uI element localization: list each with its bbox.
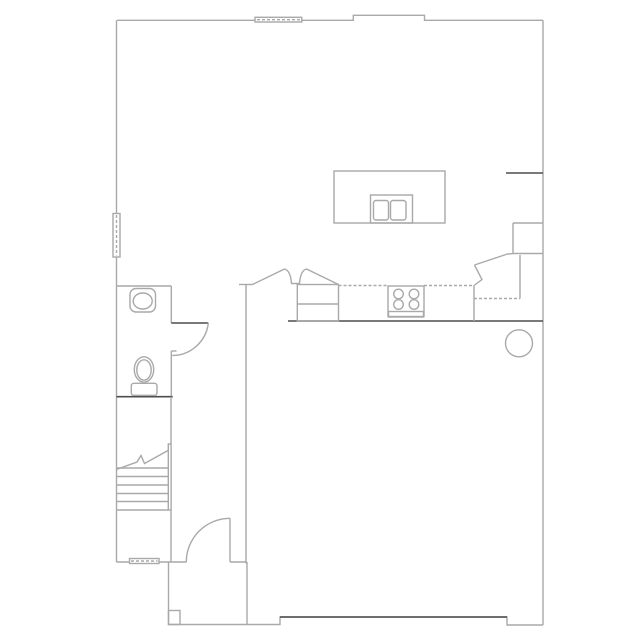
vanity-sink-basin — [133, 293, 152, 309]
stair-wall — [168, 444, 171, 510]
angled-counter-edge-end — [506, 254, 513, 255]
toilet-tank — [131, 383, 157, 395]
porch-post — [169, 611, 181, 625]
burner — [409, 289, 419, 299]
exterior-wall-top — [117, 15, 543, 20]
burner — [394, 289, 404, 299]
entry-door-swing — [186, 518, 230, 562]
angled-counter-edge — [475, 255, 507, 266]
island-sink-basin-right — [391, 201, 407, 221]
break-symbol — [474, 265, 482, 286]
burner — [394, 300, 404, 310]
refrigerator — [297, 285, 338, 322]
powder-door-swing — [172, 323, 208, 356]
kitchen-island — [334, 171, 445, 223]
arched-opening-kitchen — [253, 269, 339, 285]
floor-plan — [0, 0, 639, 639]
toilet-bowl-inner — [137, 360, 151, 380]
burner — [409, 300, 419, 310]
stair-direction-line — [117, 451, 169, 470]
porch-outline — [169, 562, 544, 625]
island-sink-basin-left — [374, 201, 389, 221]
floor-plan-canvas — [0, 0, 639, 639]
water-heater — [506, 330, 533, 357]
